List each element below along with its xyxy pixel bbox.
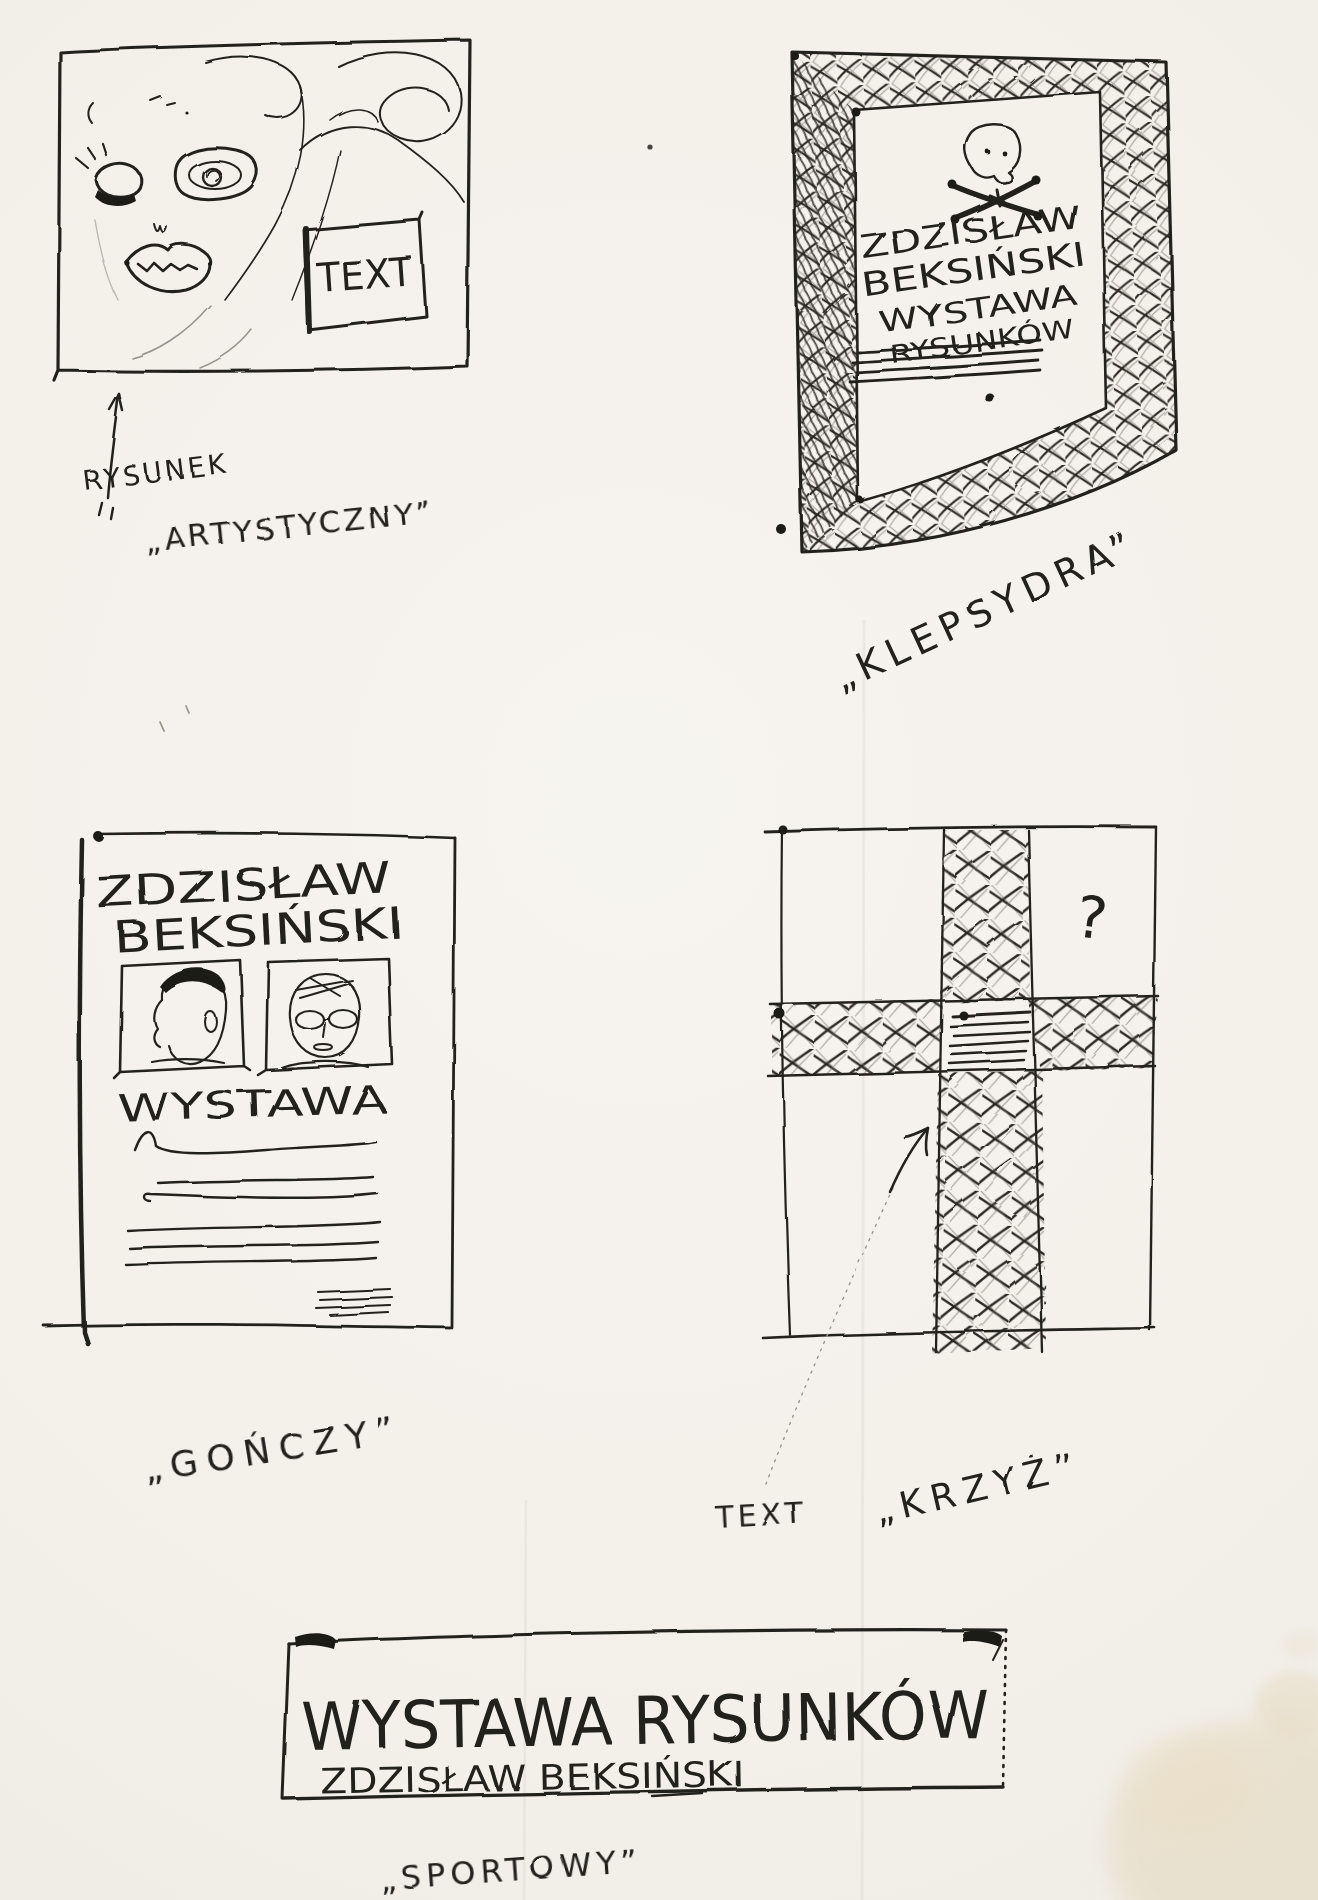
scribble-line	[135, 1132, 376, 1153]
face-drawing	[76, 52, 464, 368]
poster-smallprint-lines	[316, 1289, 392, 1315]
poster-frame	[96, 833, 455, 838]
sketch-krzyz: ? TEXT „KRZYŻ”	[714, 826, 1158, 1536]
poster-line-3: WYSTAWA	[117, 1078, 388, 1131]
arrow-icon	[98, 394, 123, 518]
cross-vertical-band-lower	[932, 1070, 1046, 1354]
banner-frame	[289, 1630, 1006, 1644]
arrow-icon	[766, 1128, 928, 1484]
banner-line-1: WYSTAWA RYSUNKÓW	[301, 1677, 990, 1766]
caption-sportowy: „SPORTOWY”	[378, 1842, 643, 1898]
sketch-artistic: TEXT RYSUNEK „ARTYSTYCZNY”	[54, 40, 470, 559]
portrait-photo-left	[114, 960, 250, 1078]
sketch-canvas: TEXT RYSUNEK „ARTYSTYCZNY”	[0, 0, 1318, 1900]
text-box: TEXT	[304, 213, 426, 331]
text-box-label: TEXT	[314, 248, 414, 301]
sketch-klepsydra: ZDZISŁAW BEKSIŃSKI WYSTAWA RYSUNKÓW „KLE…	[791, 52, 1176, 700]
cross-horizontal-band-right	[1028, 996, 1158, 1071]
poster-frame	[54, 40, 470, 380]
stray-marks	[160, 144, 786, 731]
sketch-sheet: TEXT RYSUNEK „ARTYSTYCZNY”	[0, 0, 1318, 1900]
cross-horizontal-band-left	[772, 999, 943, 1076]
caption-artystyczny: „ARTYSTYCZNY”	[143, 493, 436, 559]
cross-vertical-band	[940, 830, 1030, 1003]
text-label: TEXT	[714, 1495, 808, 1535]
poster-title: ZDZISŁAW BEKSIŃSKI	[94, 852, 405, 964]
caption-gonczy: „GOŃCZY”	[141, 1408, 407, 1490]
banner-sportowy: WYSTAWA RYSUNKÓW ZDZISŁAW BEKSIŃSKI „SPO…	[283, 1630, 1006, 1898]
sketch-gonczy: ZDZISŁAW BEKSIŃSKI WYSTAWA	[44, 831, 455, 1490]
portrait-photo-right	[258, 958, 392, 1075]
poster-text-lines	[126, 1177, 380, 1265]
question-mark: ?	[1072, 882, 1111, 953]
center-text-lines	[950, 1011, 1030, 1065]
caption-krzyz: „KRZYŻ”	[871, 1444, 1087, 1532]
caption-rysunek: RYSUNEK	[81, 447, 230, 496]
